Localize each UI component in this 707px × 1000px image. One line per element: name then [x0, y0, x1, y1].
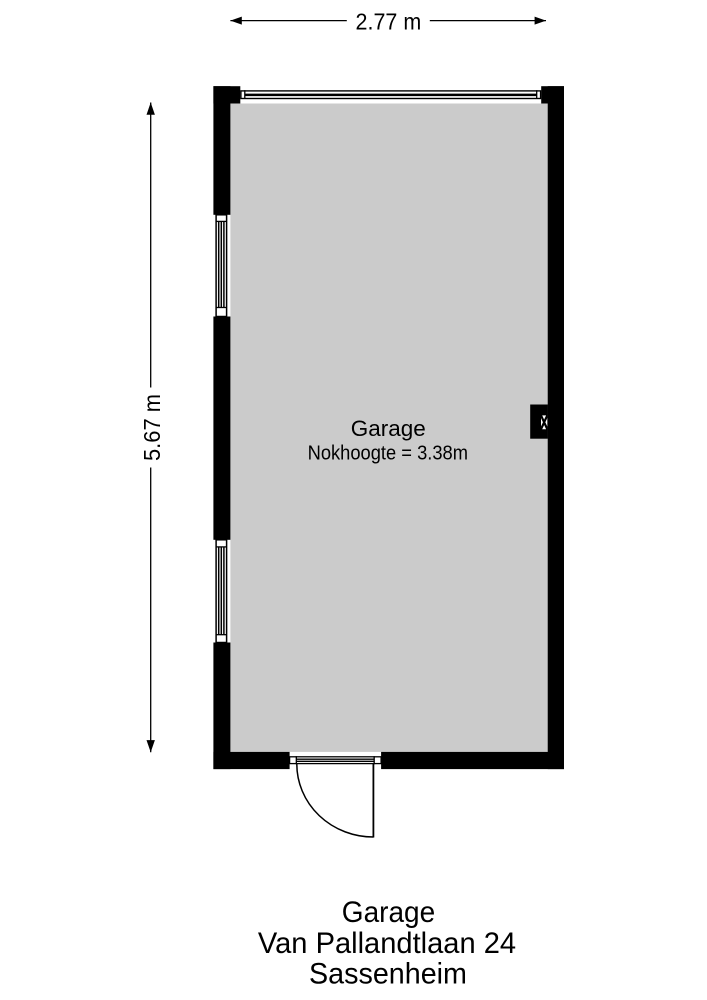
- svg-text:Van Pallandtlaan 24: Van Pallandtlaan 24: [258, 927, 516, 960]
- svg-text:2.77 m: 2.77 m: [356, 9, 422, 35]
- svg-text:Garage: Garage: [351, 416, 426, 441]
- svg-text:Garage: Garage: [342, 896, 435, 929]
- svg-text:5.67 m: 5.67 m: [139, 394, 165, 461]
- svg-text:Sassenheim: Sassenheim: [309, 958, 467, 991]
- svg-text:Nokhoogte = 3.38m: Nokhoogte = 3.38m: [308, 442, 468, 464]
